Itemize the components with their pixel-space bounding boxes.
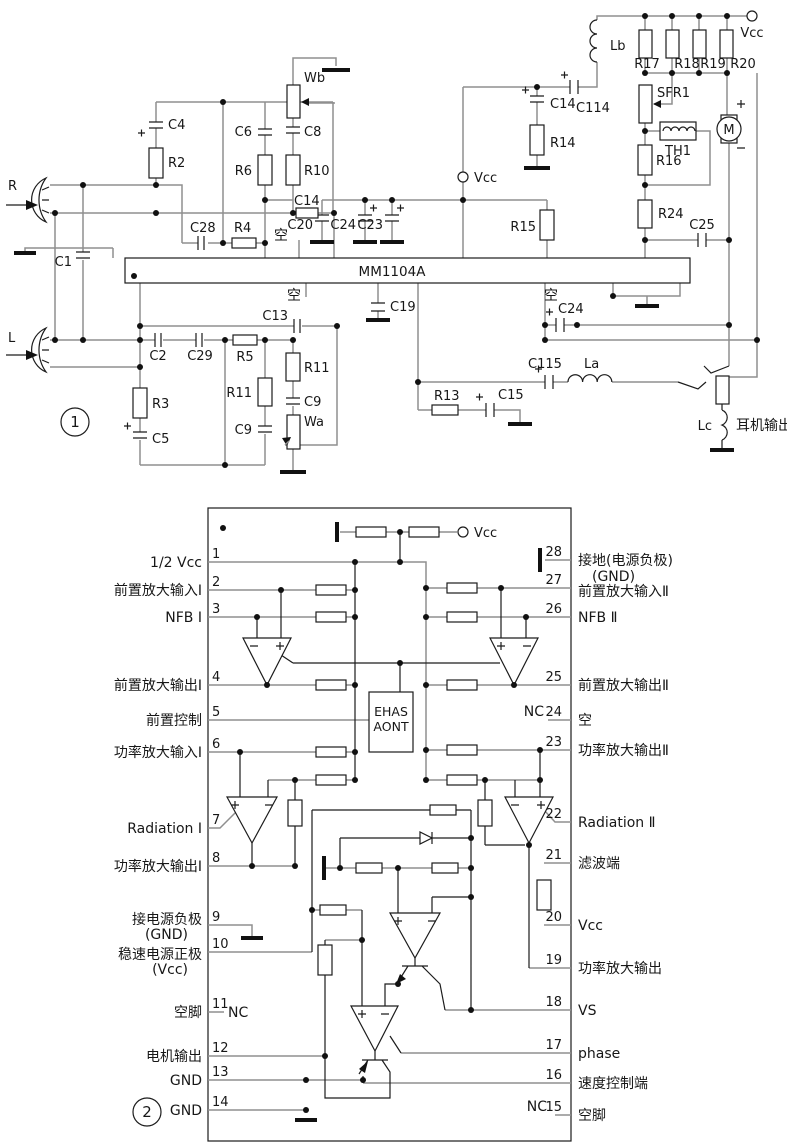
pin-12-number: 12	[212, 1041, 229, 1056]
figure2-badge-number: 2	[142, 1103, 152, 1121]
label-r16: R16	[656, 154, 682, 169]
pin-3-number: 3	[212, 602, 220, 617]
label-c9-b: C9	[304, 395, 321, 410]
pin-10-sublabel: (Vcc)	[152, 962, 188, 978]
block-line2: AONT	[373, 719, 409, 734]
label-c9-a: C9	[235, 423, 252, 438]
label-c2: C2	[149, 349, 166, 364]
label-c15: C15	[498, 388, 524, 403]
pins-right: 28 接地(电源负极) (GND) 27 前置放大输入Ⅱ 26 NFB Ⅱ 25…	[524, 545, 673, 1124]
pin-6-label: 功率放大输入Ⅰ	[114, 744, 202, 761]
coil-la	[568, 375, 612, 382]
label-kong-right: 空	[544, 288, 558, 304]
pin-8-number: 8	[212, 851, 220, 866]
pin-15-label: 空脚	[578, 1108, 606, 1124]
internal-resistors	[288, 527, 551, 975]
label-c24-right: C24	[558, 302, 584, 317]
pin-26-number: 26	[545, 602, 562, 617]
label-c19: C19	[390, 300, 416, 315]
vcc-terminal-internal	[458, 527, 468, 537]
ic-label: MM1104A	[359, 264, 427, 280]
coil-lc	[722, 410, 727, 440]
figure1-badge-number: 1	[70, 413, 80, 431]
pin-5-label: 前置控制	[146, 712, 202, 729]
pin-6-number: 6	[212, 737, 220, 752]
pin-14-label: GND	[170, 1103, 202, 1119]
label-earphone-out: 耳机输出	[736, 418, 787, 434]
label-r-input: R	[8, 179, 17, 194]
label-c6: C6	[235, 125, 252, 140]
pin-19-label: 功率放大输出	[578, 960, 662, 977]
pin-16-label: 速度控制端	[578, 1076, 648, 1092]
pin-28-number: 28	[545, 545, 562, 560]
pins-left: 1 1/2 Vcc 2 前置放大输入Ⅰ 3 NFB Ⅰ 4 前置放大输出Ⅰ 5 …	[114, 547, 249, 1119]
label-c28: C28	[190, 221, 216, 236]
pin-21-label: 滤波端	[578, 856, 620, 872]
pin-27-number: 27	[545, 573, 562, 588]
label-internal-vcc: Vcc	[474, 526, 497, 541]
pin-27-label: 前置放大输入Ⅱ	[578, 583, 669, 600]
label-wb: Wb	[304, 71, 325, 86]
label-l-input: L	[8, 331, 16, 346]
label-lb: Lb	[610, 39, 626, 54]
label-r14: R14	[550, 136, 576, 151]
label-c5: C5	[152, 432, 169, 447]
pin-23-label: 功率放大输出Ⅱ	[578, 742, 669, 759]
label-c114: C114	[576, 101, 610, 116]
label-r13: R13	[434, 389, 460, 404]
label-r10: R10	[304, 164, 330, 179]
pin-22-number: 22	[545, 807, 562, 822]
pin-4-label: 前置放大输出Ⅰ	[114, 677, 202, 694]
pin-28-sublabel: (GND)	[592, 569, 635, 585]
label-r24: R24	[658, 207, 684, 222]
ic-mm1104a: MM1104A	[125, 258, 690, 283]
pin-25-label: 前置放大输出Ⅱ	[578, 677, 669, 694]
pin-21-number: 21	[545, 848, 562, 863]
pin-10-label: 稳速电源正极	[118, 947, 202, 963]
thermistor-th1	[660, 122, 696, 140]
motor-label: M	[723, 123, 734, 138]
label-c4: C4	[168, 118, 185, 133]
label-r2: R2	[168, 156, 185, 171]
label-c20: C20	[287, 218, 313, 233]
pin-26-label: NFB Ⅱ	[578, 610, 617, 626]
pin-24-number: 24	[545, 705, 562, 720]
label-r19: R19	[700, 57, 726, 72]
label-r18: R18	[674, 57, 700, 72]
figure1-badge: 1	[61, 408, 89, 436]
label-c14-top: C14	[294, 194, 320, 209]
label-c24-mid: C24	[330, 218, 356, 233]
headphone-jack-icon	[678, 366, 729, 448]
pin-23-number: 23	[545, 735, 562, 750]
label-r4: R4	[234, 221, 251, 236]
pin-1-label: 1/2 Vcc	[150, 555, 202, 571]
pin-9-sublabel: (GND)	[145, 927, 188, 943]
pin-9-number: 9	[212, 910, 220, 925]
diode-icon	[420, 832, 432, 844]
figure2-internal-block-diagram: EHAS AONT Vcc 1	[114, 508, 673, 1141]
pin-19-number: 19	[545, 953, 562, 968]
label-r17: R17	[634, 57, 660, 72]
label-kong-top: 空	[274, 228, 288, 244]
pin-2-label: 前置放大输入Ⅰ	[114, 582, 202, 599]
pin-18-label: VS	[578, 1003, 597, 1019]
mm1104a-schematic: M MM1104A	[0, 0, 787, 1146]
coil-lb	[590, 20, 597, 62]
label-la: La	[584, 357, 599, 372]
pin-17-number: 17	[545, 1038, 562, 1053]
pin-5-number: 5	[212, 705, 220, 720]
pin-16-number: 16	[545, 1068, 562, 1083]
label-vcc-top: Vcc	[740, 26, 763, 41]
pin-11-number: 11	[212, 997, 229, 1012]
pin-9-label: 接电源负极	[132, 911, 202, 928]
pin-20-label: Vcc	[578, 918, 603, 934]
vcc-terminal-top	[747, 11, 757, 21]
pin-2-number: 2	[212, 575, 220, 590]
pin-25-number: 25	[545, 670, 562, 685]
label-r11-b: R11	[304, 361, 330, 376]
pin-20-number: 20	[545, 910, 562, 925]
pin-7-label: Radiation Ⅰ	[127, 821, 202, 837]
label-c1: C1	[55, 255, 72, 270]
label-sfr1: SFR1	[657, 86, 690, 101]
ehas-aont-block: EHAS AONT	[369, 692, 413, 752]
pin-22-label: Radiation Ⅱ	[578, 815, 656, 831]
label-r11-a: R11	[226, 386, 252, 401]
pin-15-number: 15	[545, 1100, 562, 1115]
label-lc: Lc	[698, 419, 712, 434]
pin-12-label: 电机输出	[146, 1049, 202, 1065]
pin-11-label: 空脚	[174, 1005, 202, 1021]
pin-1-number: 1	[212, 547, 220, 562]
label-c13: C13	[262, 309, 288, 324]
label-c115: C115	[528, 357, 562, 372]
label-c14-right: C14	[550, 97, 576, 112]
pin-7-number: 7	[212, 813, 220, 828]
pin-13-label: GND	[170, 1073, 202, 1089]
label-kong-bottom: 空	[287, 288, 301, 304]
pin-3-label: NFB Ⅰ	[165, 610, 202, 626]
pin-24-nc: NC	[524, 704, 544, 720]
pin-13-number: 13	[212, 1065, 229, 1080]
label-r6: R6	[235, 164, 252, 179]
label-r15: R15	[510, 220, 536, 235]
pin-15-nc: NC	[527, 1099, 547, 1115]
label-wa: Wa	[304, 415, 324, 430]
figure2-badge: 2	[133, 1098, 161, 1126]
label-r3: R3	[152, 397, 169, 412]
pin-4-number: 4	[212, 670, 220, 685]
figure1-application-circuit: M MM1104A	[6, 11, 787, 472]
label-r20: R20	[730, 57, 756, 72]
label-r5: R5	[236, 350, 253, 365]
schematic-page: M MM1104A	[0, 0, 787, 1146]
pin-17-label: phase	[578, 1046, 620, 1062]
vcc-terminal-mid	[458, 172, 468, 182]
pin-11-nc: NC	[228, 1005, 248, 1021]
block-line1: EHAS	[374, 704, 408, 719]
pin-24-label: 空	[578, 713, 592, 729]
pin-18-number: 18	[545, 995, 562, 1010]
label-c8: C8	[304, 125, 321, 140]
pin-14-number: 14	[212, 1095, 229, 1110]
label-c25: C25	[689, 218, 715, 233]
label-c29: C29	[187, 349, 213, 364]
motor-icon: M	[717, 115, 741, 143]
label-vcc-mid: Vcc	[474, 171, 497, 186]
label-c23: C23	[357, 218, 383, 233]
pin-28-label: 接地(电源负极)	[578, 552, 673, 569]
pin-10-number: 10	[212, 937, 229, 952]
pin-8-label: 功率放大输出Ⅰ	[114, 858, 202, 875]
